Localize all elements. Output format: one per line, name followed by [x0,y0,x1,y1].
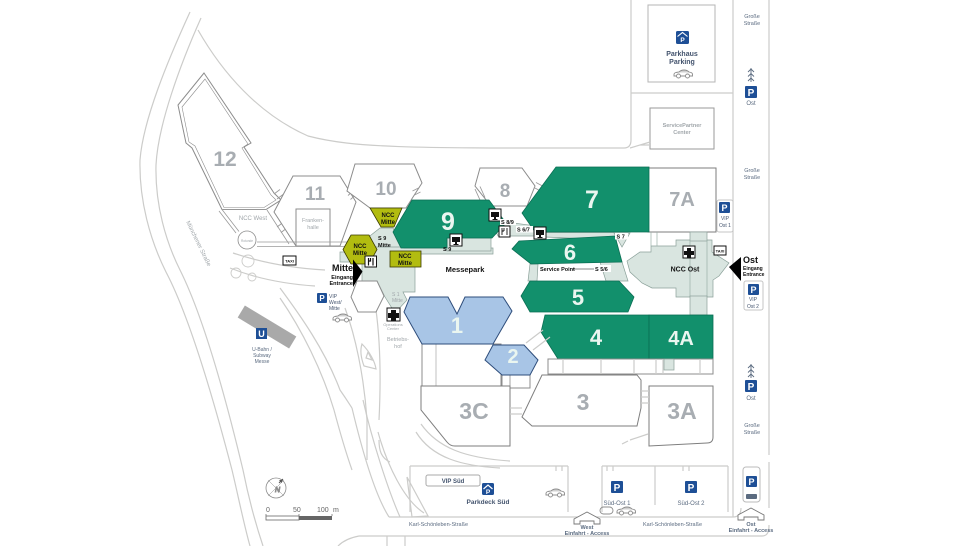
svg-text:m: m [333,507,339,514]
svg-text:Mitte: Mitte [332,263,353,273]
svg-text:Einfahrt - Access: Einfahrt - Access [729,528,774,534]
svg-text:10: 10 [375,179,396,200]
svg-text:100: 100 [317,507,329,514]
svg-text:NCC: NCC [399,254,413,260]
svg-text:VIP: VIP [749,297,758,303]
svg-text:P: P [614,483,621,494]
svg-text:Straße: Straße [744,430,761,436]
svg-text:Center: Center [673,130,691,136]
svg-text:hof: hof [394,344,402,350]
svg-text:1: 1 [451,313,463,338]
svg-text:Parking: Parking [669,59,695,66]
svg-text:Rotunde: Rotunde [241,239,253,243]
svg-text:S 7: S 7 [617,235,625,241]
svg-text:50: 50 [293,507,301,514]
svg-text:Messepark: Messepark [446,265,486,274]
svg-text:S 9: S 9 [378,236,386,242]
svg-text:Süd-Ost 1: Süd-Ost 1 [603,501,631,507]
svg-text:3C: 3C [459,398,488,424]
svg-text:7: 7 [585,186,599,214]
svg-text:Mitte: Mitte [329,306,340,312]
svg-text:4A: 4A [668,328,694,350]
svg-text:TAXI: TAXI [285,259,294,264]
svg-text:Center: Center [387,326,400,331]
svg-text:Ost: Ost [743,255,758,265]
svg-text:S 5/6: S 5/6 [595,267,608,273]
svg-text:Große: Große [744,14,760,20]
svg-text:NCC: NCC [354,244,368,250]
svg-text:S 9: S 9 [443,247,451,253]
svg-text:5: 5 [572,285,584,310]
svg-text:2: 2 [507,346,518,368]
svg-text:TAXI: TAXI [716,249,725,254]
svg-text:Süd-Ost 2: Süd-Ost 2 [677,501,705,507]
svg-text:3A: 3A [667,398,696,424]
svg-text:Karl-Schönleben-Straße: Karl-Schönleben-Straße [409,522,468,528]
svg-text:Parkdeck Süd: Parkdeck Süd [467,499,510,506]
svg-text:0: 0 [266,507,270,514]
svg-text:Straße: Straße [744,21,761,27]
svg-text:NCC: NCC [382,213,396,219]
svg-text:12: 12 [213,148,236,171]
svg-text:Mitte: Mitte [392,298,403,304]
svg-text:S 6/7: S 6/7 [517,228,530,234]
svg-text:Große: Große [744,423,760,429]
svg-text:VIP Süd: VIP Süd [442,479,465,485]
svg-text:3: 3 [577,389,590,415]
svg-text:Ost: Ost [746,101,756,107]
svg-text:4: 4 [590,325,603,350]
svg-text:9: 9 [441,208,455,236]
svg-text:P: P [680,37,685,44]
svg-text:11: 11 [305,184,326,205]
svg-text:Ost 1: Ost 1 [719,223,731,229]
svg-text:NCC West: NCC West [239,216,268,222]
svg-text:Große: Große [744,168,760,174]
svg-text:Service Point: Service Point [540,267,575,273]
svg-text:Entrance: Entrance [743,272,765,278]
svg-text:P: P [486,489,491,496]
svg-text:Mitte: Mitte [398,261,413,267]
svg-text:Entrance: Entrance [329,281,353,287]
svg-text:Ost 2: Ost 2 [747,304,759,310]
svg-text:P: P [748,88,755,99]
svg-text:Straße: Straße [744,175,761,181]
svg-text:NCC Ost: NCC Ost [671,267,700,274]
svg-text:U: U [258,329,265,339]
svg-text:P: P [750,285,756,295]
svg-text:Franken-: Franken- [302,218,324,224]
svg-text:S 8/9: S 8/9 [501,220,514,226]
svg-text:Einfahrt - Access: Einfahrt - Access [565,531,610,537]
svg-text:ServicePartner: ServicePartner [663,123,703,129]
svg-text:P: P [721,203,727,213]
svg-text:Karl-Schönleben-Straße: Karl-Schönleben-Straße [643,522,702,528]
svg-text:P: P [319,294,325,303]
svg-text:halle: halle [307,225,319,231]
svg-text:Messe: Messe [255,359,270,365]
svg-text:P: P [688,483,695,494]
svg-text:VIP: VIP [721,216,730,222]
svg-text:7A: 7A [669,189,695,211]
svg-text:8: 8 [500,181,511,202]
svg-text:Parkhaus: Parkhaus [666,51,698,58]
svg-text:P: P [748,477,754,487]
svg-text:Ost: Ost [746,396,756,402]
svg-text:P: P [748,382,755,393]
svg-text:Mitte: Mitte [381,220,396,226]
svg-text:Mitte: Mitte [378,243,391,249]
svg-text:Betriebs-: Betriebs- [387,337,409,343]
svg-text:6: 6 [564,240,576,265]
